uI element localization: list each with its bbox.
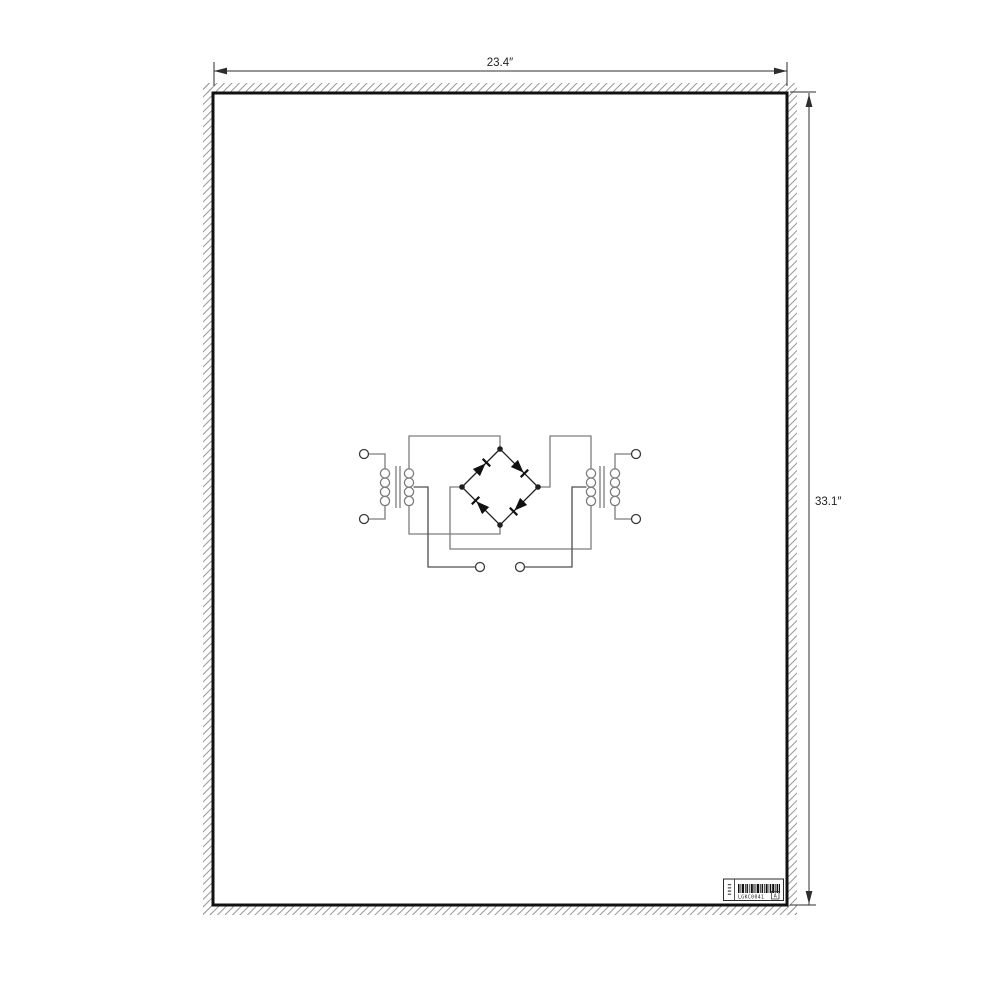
label-box-char: A	[774, 894, 777, 900]
node-dot-bottom	[497, 522, 503, 528]
width-dimension: 23.4″	[214, 57, 787, 86]
height-dimension: 33.1″	[790, 92, 841, 905]
barcode-label: LGKC0041 A	[724, 879, 784, 901]
terminal-circle-left-bottom	[360, 515, 369, 524]
arrow-right-icon	[774, 68, 787, 75]
width-dimension-label: 23.4″	[487, 57, 513, 69]
height-dimension-label: 33.1″	[815, 496, 841, 508]
arrow-down-icon	[806, 891, 813, 904]
terminal-circle-right-bottom	[632, 515, 641, 524]
node-dot-right	[535, 484, 541, 490]
label-code: LGKC0041	[738, 895, 764, 901]
arrow-left-icon	[214, 68, 227, 75]
node-dot-left	[459, 484, 465, 490]
node-dot-top	[497, 446, 503, 452]
terminal-circle-bottom-left	[476, 563, 485, 572]
terminal-circle-left-top	[360, 450, 369, 459]
arrow-up-icon	[806, 94, 813, 107]
sheet-outline	[213, 93, 787, 905]
terminal-circle-bottom-right	[516, 563, 525, 572]
technical-drawing: 23.4″ 33.1″	[0, 0, 1000, 1000]
blueprint-page: 23.4″ 33.1″	[0, 0, 1000, 1000]
terminal-circle-right-top	[632, 450, 641, 459]
